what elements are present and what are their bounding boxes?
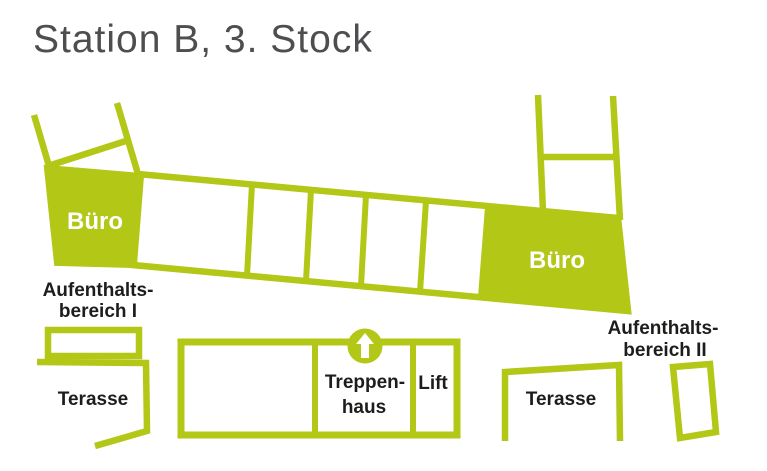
wall-stub-top-left [34, 115, 49, 166]
floor-plan-diagram: Büro Büro Aufenthalts- bereich I Terasse… [0, 0, 767, 471]
stairwell-label-line1: Treppen- [325, 372, 405, 393]
lounge-area-2-label-line2: bereich II [623, 340, 706, 361]
lift-label: Lift [418, 373, 448, 394]
wall-diagonal-top-left [48, 140, 129, 166]
lounge-area-2-room [673, 364, 716, 438]
office-right-label: Büro [529, 247, 585, 274]
floor-plan-page: Station B, 3. Stock Büro Büro [0, 0, 767, 471]
lounge-area-2-label-line1: Aufenthalts- [608, 318, 719, 339]
lounge-area-1-label-line2: bereich I [59, 301, 137, 322]
wall-vertical-right-inner [538, 95, 543, 212]
terrace-right-label: Terasse [526, 389, 596, 410]
lounge-area-1-label-line1: Aufenthalts- [43, 280, 154, 301]
stairwell-label-line2: haus [342, 397, 386, 418]
terrace-left-label: Terasse [58, 389, 128, 410]
wall-vertical-top-left [117, 103, 138, 174]
lounge-area-1-room [48, 330, 139, 356]
office-left-label: Büro [67, 208, 123, 235]
